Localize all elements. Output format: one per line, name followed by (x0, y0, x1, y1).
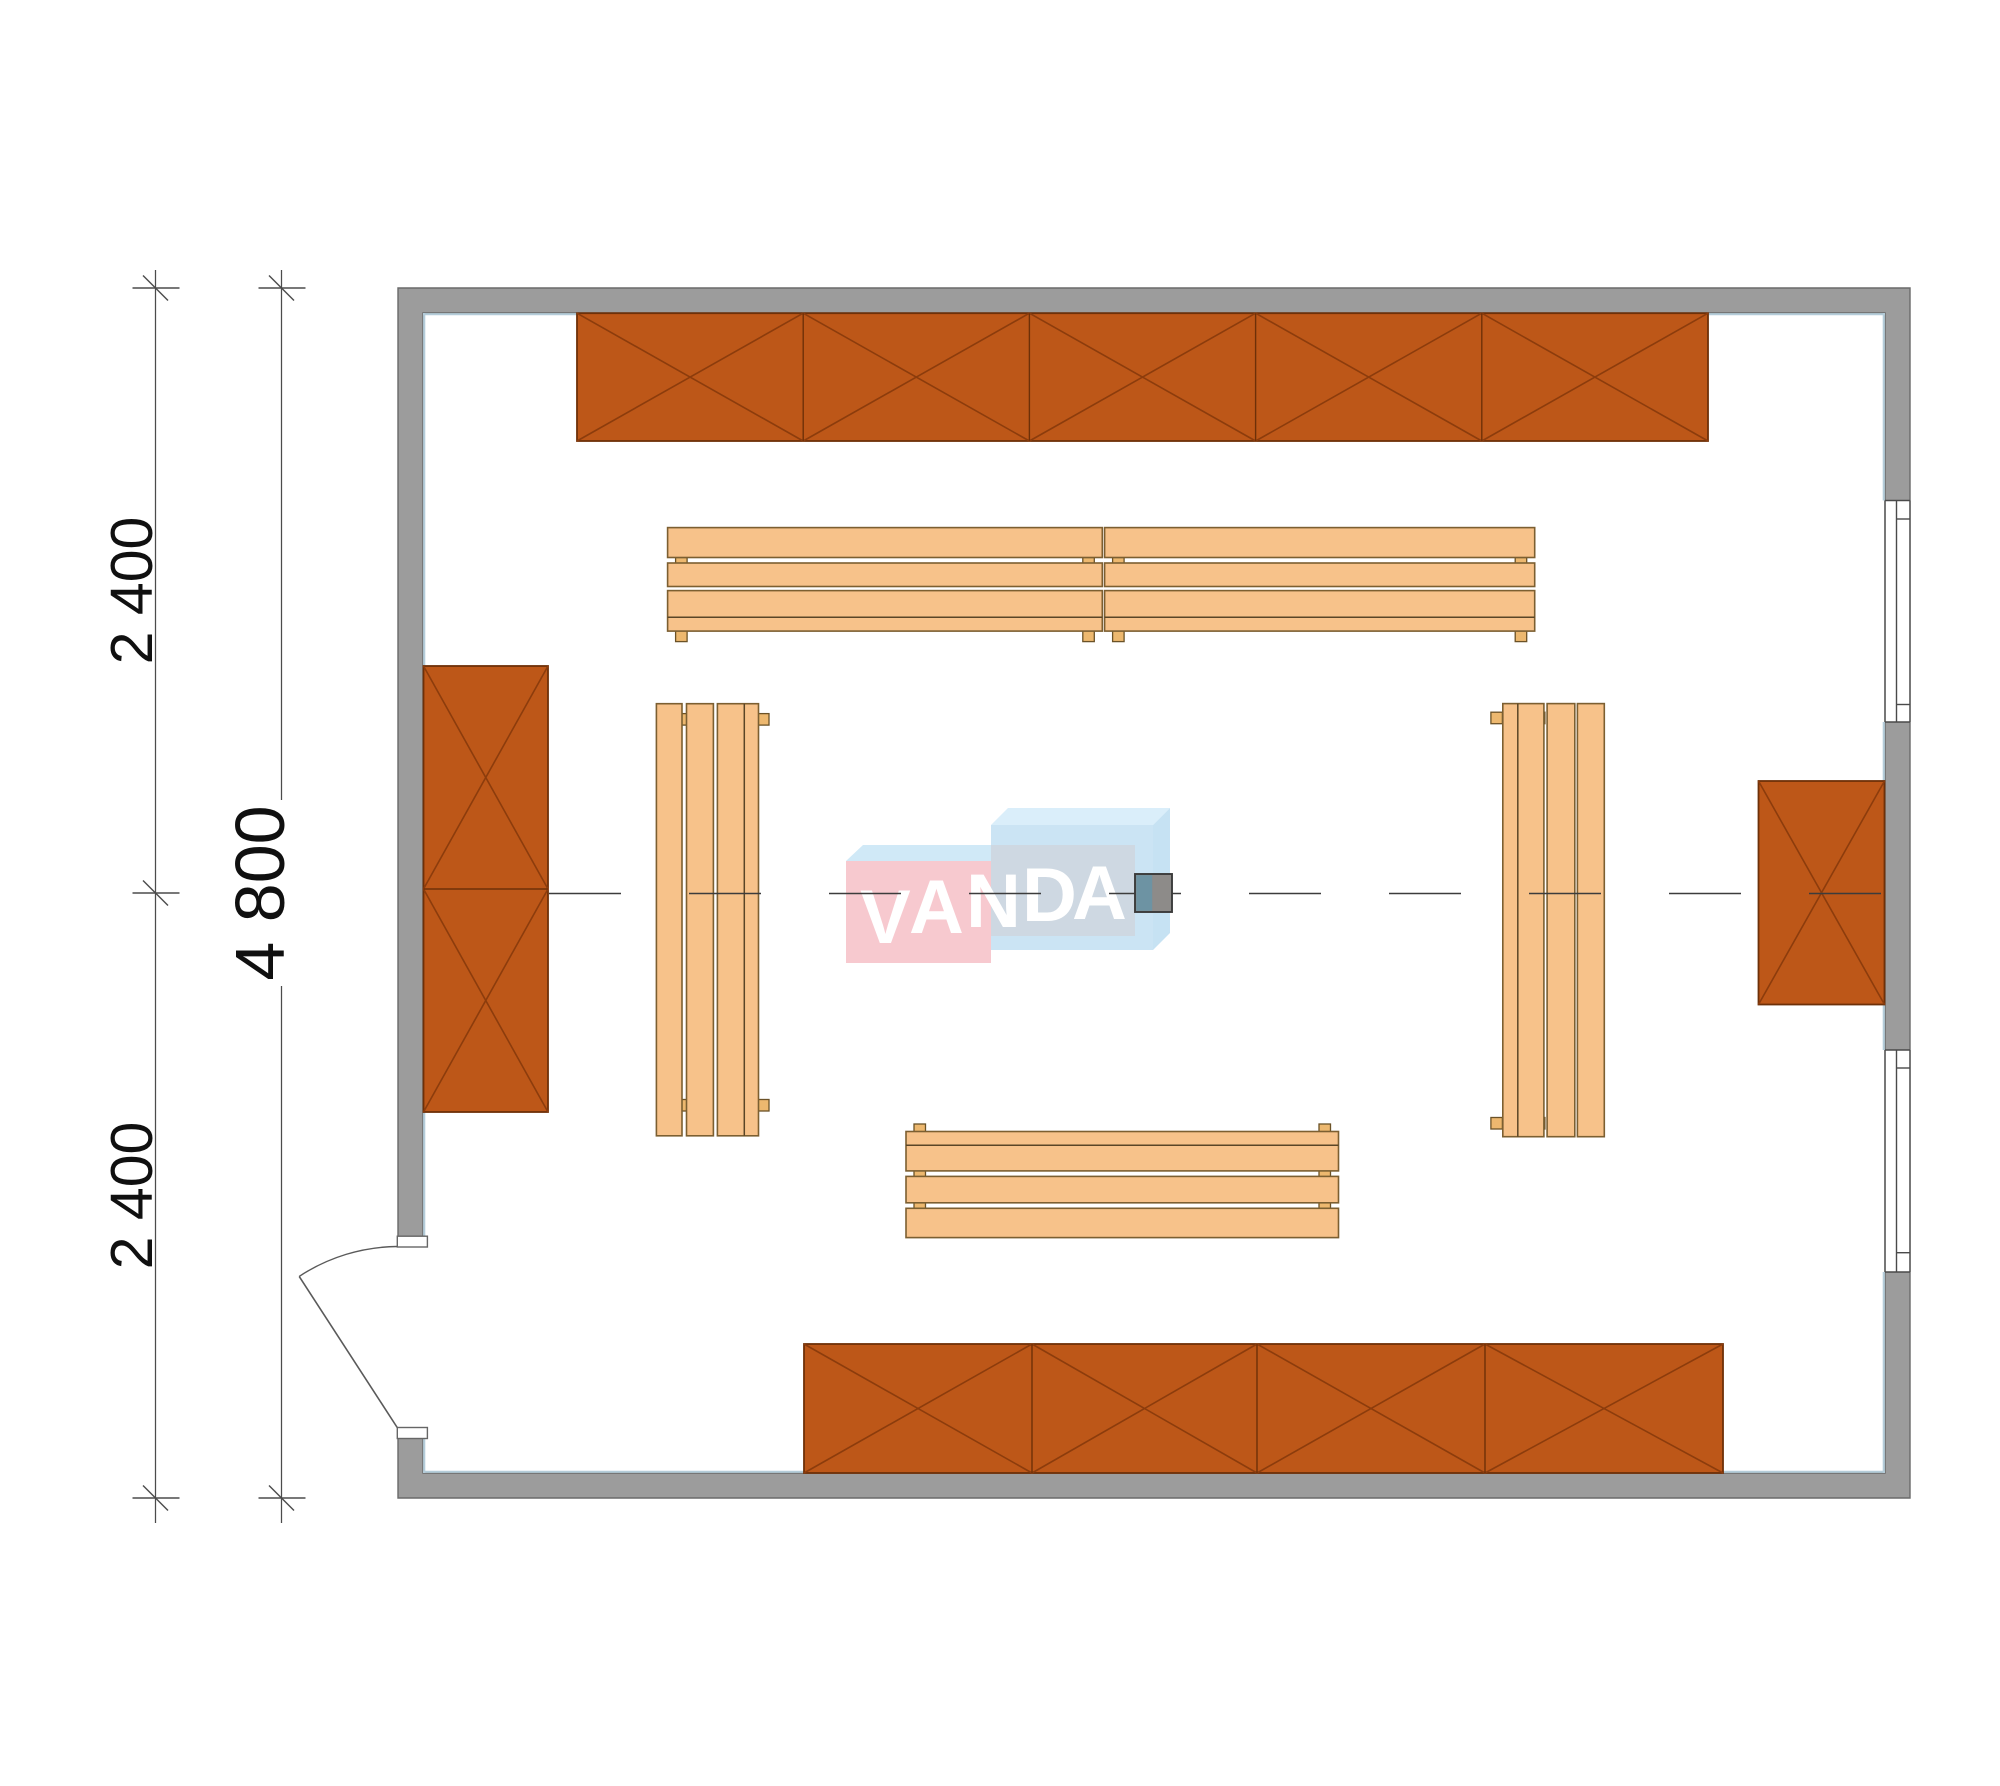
svg-text:2 400: 2 400 (99, 1122, 165, 1270)
svg-text:D: D (1022, 853, 1077, 938)
svg-text:2 400: 2 400 (99, 517, 165, 665)
svg-text:4 800: 4 800 (221, 805, 299, 980)
svg-text:A: A (909, 865, 964, 950)
svg-text:V: V (860, 875, 911, 960)
svg-text:N: N (966, 859, 1021, 944)
